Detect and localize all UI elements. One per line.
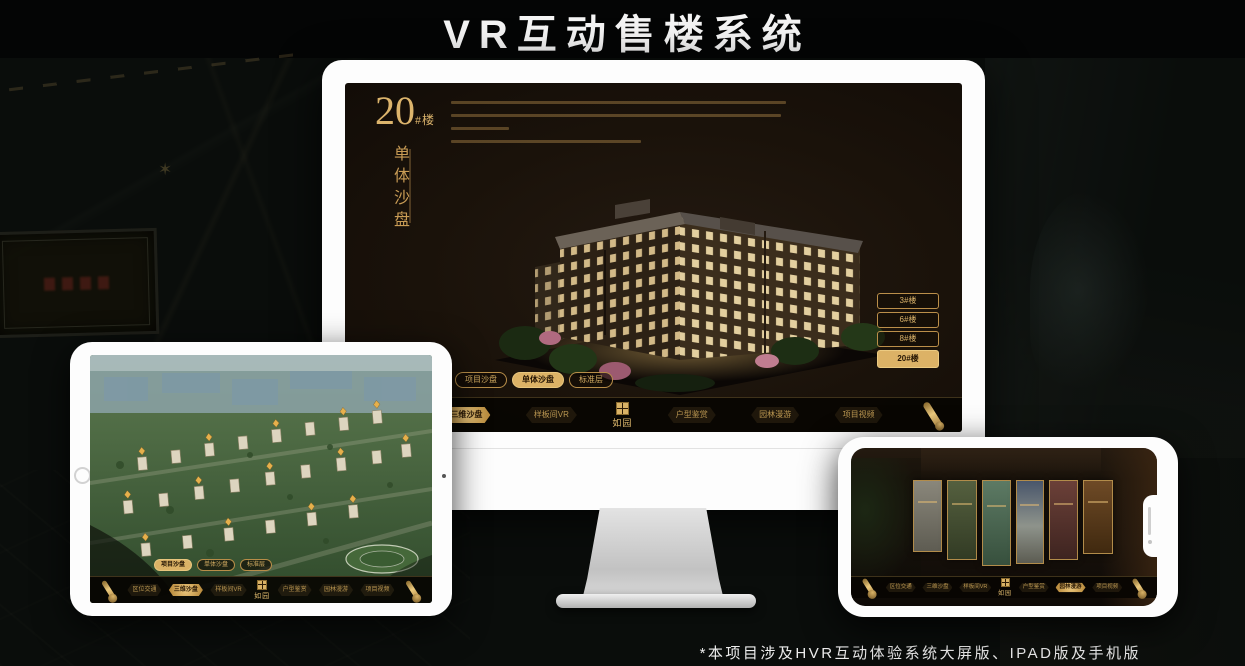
tab-project-sandtable[interactable]: 项目沙盘 xyxy=(154,559,192,571)
interior-ceiling-beam xyxy=(921,448,1101,474)
tablet-camera-dot xyxy=(442,474,446,478)
nav-item-3d-sandtable[interactable]: 三维沙盘 xyxy=(169,584,203,596)
nav-item-showroom-vr[interactable]: 样板间VR xyxy=(210,584,246,596)
background-plaque xyxy=(0,228,159,338)
floor-button-group: 3#楼 6#楼 8#楼 20#楼 xyxy=(877,293,939,368)
nav-item-location[interactable]: 区位交通 xyxy=(886,583,916,593)
nav-item-showroom-vr[interactable]: 样板间VR xyxy=(526,407,577,423)
gallery-panel[interactable] xyxy=(947,480,977,560)
gallery-panel[interactable] xyxy=(982,480,1011,566)
gallery-panel[interactable] xyxy=(913,480,942,552)
nav-item-garden-roam[interactable]: 园林漫游 xyxy=(1056,583,1086,593)
tablet-view-tabs: 项目沙盘 单体沙盘 标准层 xyxy=(154,559,272,571)
tab-standard-floor[interactable]: 标准层 xyxy=(569,372,613,388)
project-logo: 如园 xyxy=(254,580,270,601)
logo-seal-icon xyxy=(616,402,629,415)
nav-item-garden-roam[interactable]: 园林漫游 xyxy=(319,584,353,596)
phone-screen: 区位交通 三维沙盘 样板间VR 如园 户型鉴赏 园林漫游 项目视频 xyxy=(851,448,1157,606)
nav-item-floorplans[interactable]: 户型鉴赏 xyxy=(278,584,312,596)
gallery-panel[interactable] xyxy=(1083,480,1113,554)
nav-item-floorplans[interactable]: 户型鉴赏 xyxy=(668,407,716,423)
poster-canvas: ✶ VR互动售楼系统 *本项目涉及HVR互动体验系统大屏版、IPAD版及手机版 … xyxy=(0,0,1245,666)
phone-notch xyxy=(1143,495,1157,557)
nav-item-garden-roam[interactable]: 园林漫游 xyxy=(751,407,799,423)
monitor-stand xyxy=(583,508,723,596)
tab-single-sandtable[interactable]: 单体沙盘 xyxy=(197,559,235,571)
phone-mockup: 区位交通 三维沙盘 样板间VR 如园 户型鉴赏 园林漫游 项目视频 xyxy=(838,437,1178,617)
floor-button-3[interactable]: 3#楼 xyxy=(877,293,939,309)
floor-button-8[interactable]: 8#楼 xyxy=(877,331,939,347)
gallery-panel[interactable] xyxy=(1016,480,1045,564)
tab-standard-floor[interactable]: 标准层 xyxy=(240,559,272,571)
nav-item-floorplans[interactable]: 户型鉴赏 xyxy=(1019,583,1049,593)
gallery-panels xyxy=(913,480,1113,572)
floor-button-6[interactable]: 6#楼 xyxy=(877,312,939,328)
nav-item-project-video[interactable]: 项目视频 xyxy=(360,584,394,596)
phone-camera-dot xyxy=(1148,540,1152,544)
scroll-ornament-icon[interactable] xyxy=(1132,578,1147,598)
tab-project-sandtable[interactable]: 项目沙盘 xyxy=(455,372,507,388)
scroll-ornament-icon[interactable] xyxy=(101,579,117,600)
tablet-mockup: 项目沙盘 单体沙盘 标准层 区位交通 三维沙盘 样板间VR 如园 户型鉴赏 园林… xyxy=(70,342,452,616)
nav-item-project-video[interactable]: 项目视频 xyxy=(835,407,883,423)
nav-item-showroom-vr[interactable]: 样板间VR xyxy=(959,583,991,593)
gallery-panel[interactable] xyxy=(1049,480,1078,560)
logo-seal-icon xyxy=(1001,578,1010,587)
footnote: *本项目涉及HVR互动体验系统大屏版、IPAD版及手机版 xyxy=(700,642,1141,663)
building-number-heading: 20#楼 xyxy=(375,91,435,131)
nav-item-location[interactable]: 区位交通 xyxy=(127,584,161,596)
tablet-home-button[interactable] xyxy=(74,467,91,484)
building-3d-model xyxy=(465,145,905,400)
tab-single-sandtable[interactable]: 单体沙盘 xyxy=(512,372,564,388)
view-tabs: 项目沙盘 单体沙盘 标准层 xyxy=(455,372,613,388)
decorative-rule xyxy=(409,149,411,223)
phone-speaker xyxy=(1148,507,1151,535)
background-river xyxy=(1030,190,1150,390)
floor-button-20[interactable]: 20#楼 xyxy=(877,350,939,368)
page-title: VR互动售楼系统 xyxy=(0,2,1245,60)
project-logo: 如园 xyxy=(998,578,1012,597)
background-aerial-right xyxy=(985,58,1245,458)
scroll-ornament-icon[interactable] xyxy=(922,400,944,429)
tablet-screen: 项目沙盘 单体沙盘 标准层 区位交通 三维沙盘 样板间VR 如园 户型鉴赏 园林… xyxy=(90,355,432,603)
plaque-frame xyxy=(2,237,150,329)
compass-star-icon: ✶ xyxy=(158,160,172,180)
nav-item-project-video[interactable]: 项目视频 xyxy=(1092,583,1122,593)
tablet-bottom-nav: 区位交通 三维沙盘 样板间VR 如园 户型鉴赏 园林漫游 项目视频 xyxy=(90,576,432,603)
scroll-ornament-icon[interactable] xyxy=(862,578,877,598)
phone-bottom-nav: 区位交通 三维沙盘 样板间VR 如园 户型鉴赏 园林漫游 项目视频 xyxy=(851,576,1157,598)
scroll-ornament-icon[interactable] xyxy=(405,579,421,600)
nav-item-3d-sandtable[interactable]: 三维沙盘 xyxy=(922,583,952,593)
building-subtitle-vertical: 单体沙盘 xyxy=(387,145,411,233)
project-logo: 如园 xyxy=(612,402,632,429)
logo-seal-icon xyxy=(257,580,267,590)
interior-plants xyxy=(851,458,921,588)
monitor-stand-base xyxy=(556,594,756,608)
